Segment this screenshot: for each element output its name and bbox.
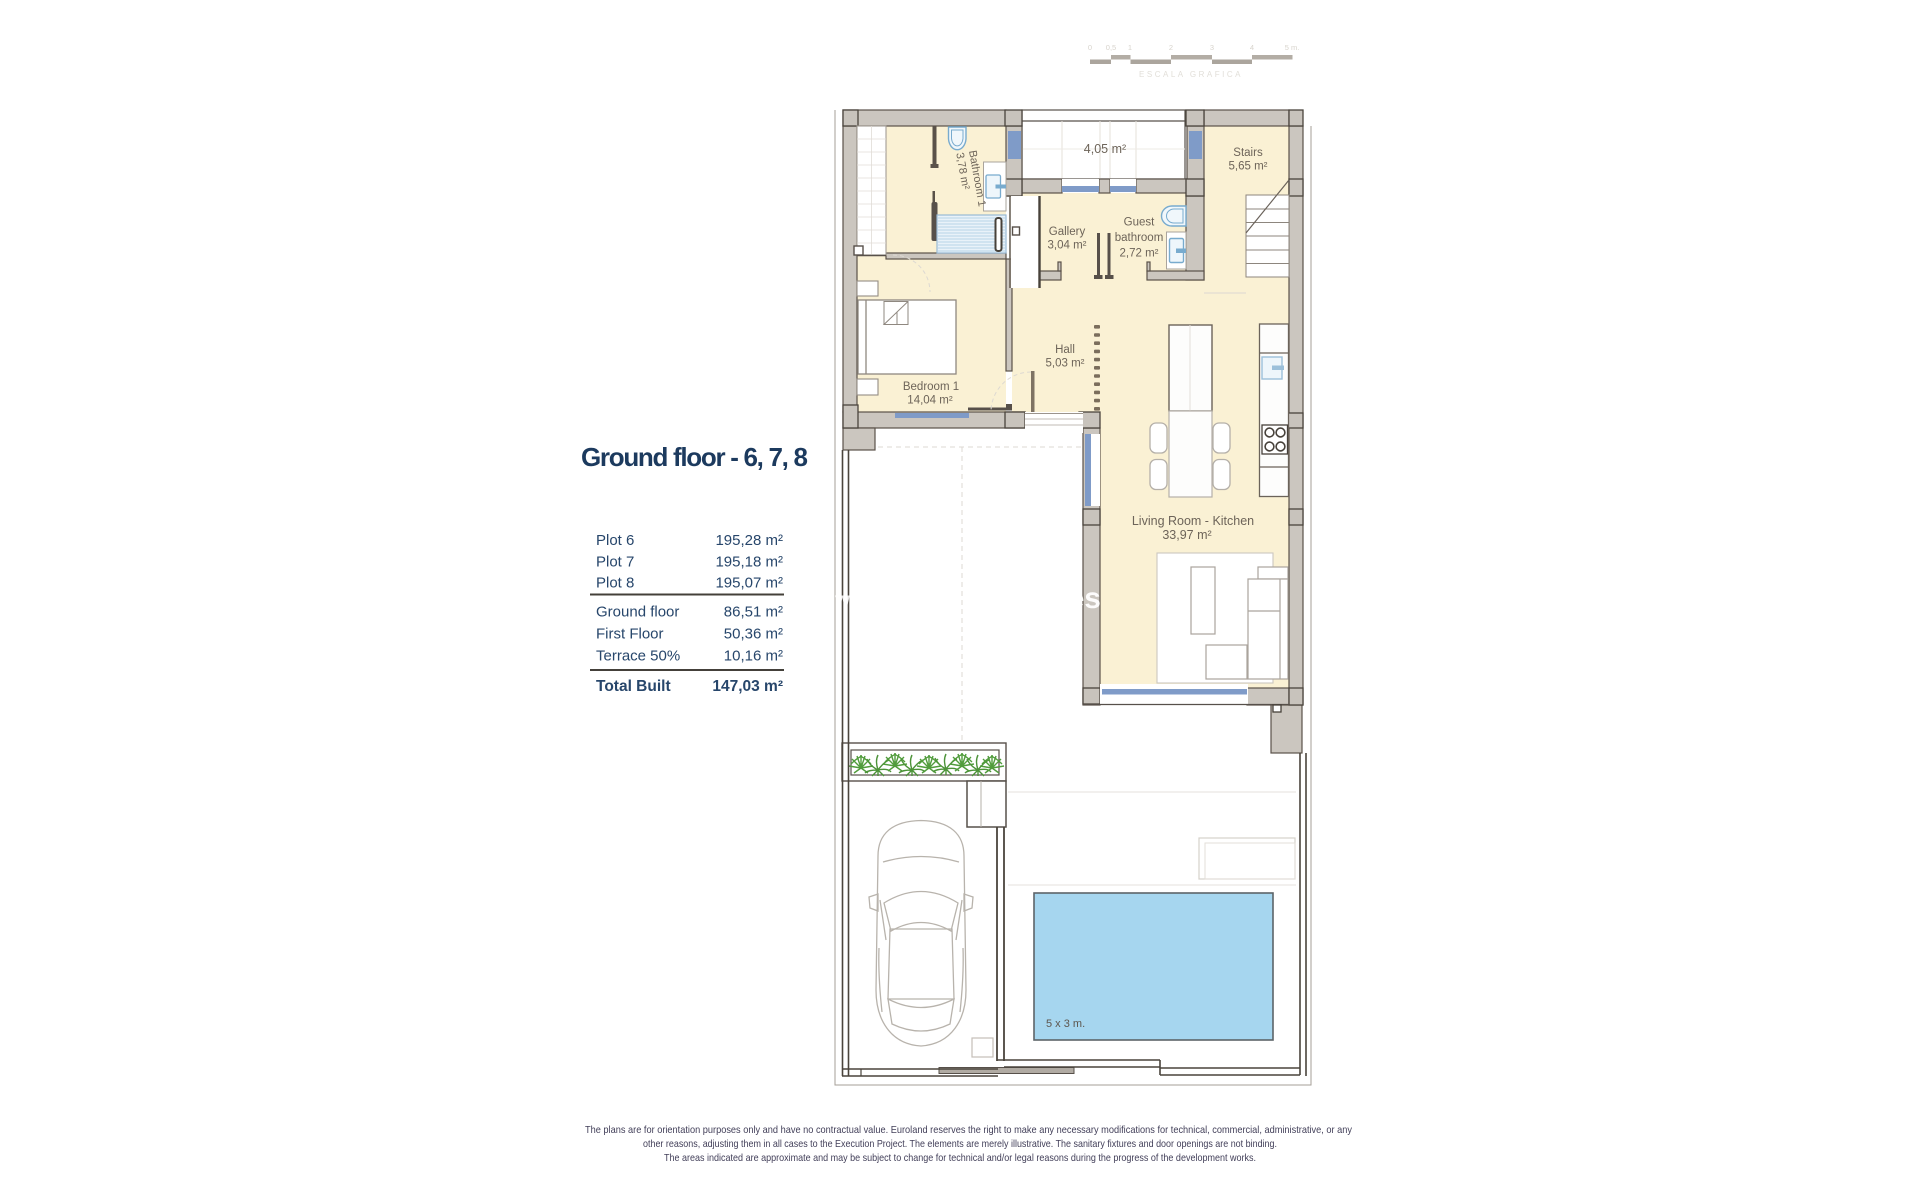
svg-text:Stairs: Stairs [1233, 147, 1263, 159]
svg-text:195,18 m²: 195,18 m² [715, 554, 783, 571]
svg-text:86,51 m²: 86,51 m² [724, 604, 783, 621]
svg-text:Bedroom 1: Bedroom 1 [903, 381, 959, 393]
svg-text:bathroom: bathroom [1115, 232, 1164, 244]
svg-text:es: es [1068, 582, 1101, 615]
svg-text:The plans are for orientation: The plans are for orientation purposes o… [585, 1124, 1353, 1136]
svg-text:14,04 m²: 14,04 m² [907, 395, 953, 407]
svg-text:50,36 m²: 50,36 m² [724, 626, 783, 643]
svg-text:Guest: Guest [1124, 217, 1155, 229]
svg-text:Plot 7: Plot 7 [596, 554, 634, 571]
svg-text:5 m.: 5 m. [1285, 43, 1300, 52]
svg-text:4: 4 [1250, 43, 1254, 52]
svg-text:3: 3 [1210, 43, 1214, 52]
svg-text:195,07 m²: 195,07 m² [715, 575, 783, 592]
svg-text:Terrace 50%: Terrace 50% [596, 648, 680, 665]
svg-text:First Floor: First Floor [596, 626, 664, 643]
svg-text:w: w [834, 590, 850, 611]
svg-text:147,03 m²: 147,03 m² [712, 678, 783, 695]
svg-text:ESCALA GRAFICA: ESCALA GRAFICA [1139, 70, 1243, 79]
svg-text:10,16 m²: 10,16 m² [724, 648, 783, 665]
svg-text:4,05 m²: 4,05 m² [1084, 142, 1126, 156]
svg-text:33,97 m²: 33,97 m² [1162, 528, 1211, 542]
svg-text:3,04 m²: 3,04 m² [1048, 240, 1087, 252]
svg-text:The areas indicated are approx: The areas indicated are approximate and … [664, 1152, 1256, 1164]
svg-text:Hall: Hall [1055, 344, 1075, 356]
svg-text:5,03 m²: 5,03 m² [1046, 358, 1085, 370]
svg-text:195,28 m²: 195,28 m² [715, 532, 783, 549]
svg-text:Gallery: Gallery [1049, 226, 1086, 238]
svg-text:other reasons, adjusting them: other reasons, adjusting them in all cas… [643, 1138, 1277, 1150]
svg-text:Ground floor - 6, 7, 8: Ground floor - 6, 7, 8 [581, 442, 808, 472]
svg-text:5,65 m²: 5,65 m² [1229, 161, 1268, 173]
svg-text:Living Room - Kitchen: Living Room - Kitchen [1132, 514, 1254, 528]
svg-text:1: 1 [1128, 43, 1132, 52]
svg-text:Plot 8: Plot 8 [596, 575, 634, 592]
svg-text:5 x 3 m.: 5 x 3 m. [1046, 1018, 1085, 1030]
svg-text:Plot 6: Plot 6 [596, 532, 634, 549]
svg-text:Ground floor: Ground floor [596, 604, 679, 621]
svg-text:2,72 m²: 2,72 m² [1120, 248, 1159, 260]
svg-text:2: 2 [1169, 43, 1173, 52]
svg-text:0: 0 [1088, 43, 1092, 52]
svg-text:0,5: 0,5 [1106, 43, 1116, 52]
svg-text:Total Built: Total Built [596, 678, 671, 695]
